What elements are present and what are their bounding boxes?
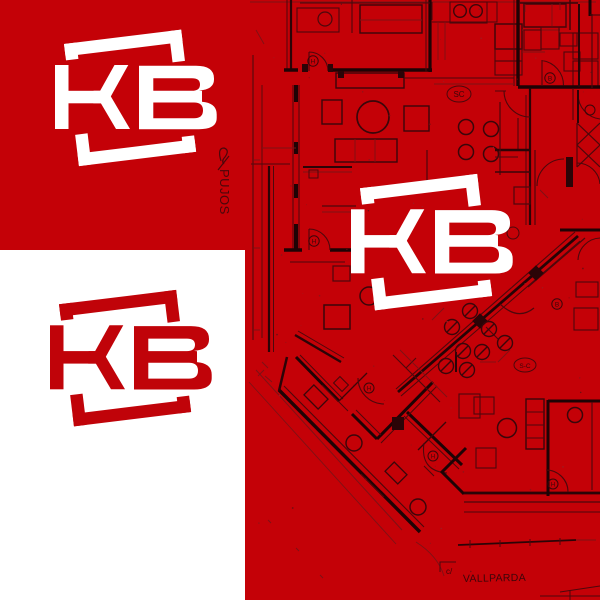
svg-text:H: H — [551, 483, 555, 489]
svg-text:c/: c/ — [446, 567, 453, 576]
svg-text:VALLPARDA: VALLPARDA — [463, 572, 526, 585]
svg-text:H: H — [312, 239, 317, 246]
svg-text:H: H — [311, 59, 316, 66]
svg-text:B: B — [548, 76, 552, 83]
svg-text:H: H — [431, 455, 435, 461]
svg-text:B: B — [555, 302, 559, 309]
svg-text:SC: SC — [453, 90, 464, 99]
svg-text:S-C: S-C — [519, 363, 531, 370]
svg-text:PUJOS: PUJOS — [217, 169, 232, 215]
svg-text:H: H — [367, 387, 371, 393]
